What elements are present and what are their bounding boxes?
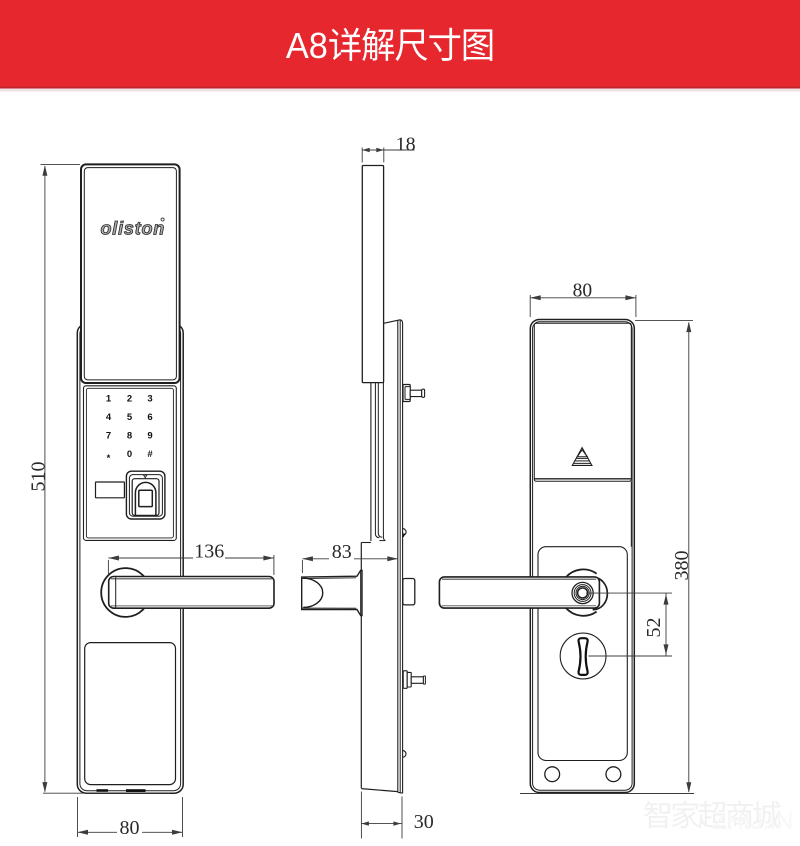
svg-text:2: 2 [127,394,132,405]
svg-text:30: 30 [414,811,434,833]
svg-text:80: 80 [573,280,593,301]
svg-text:9: 9 [147,431,152,442]
svg-text:°: ° [160,215,165,230]
svg-text:A8: A8 [286,26,328,66]
svg-text:83: 83 [332,541,352,563]
svg-text:18: 18 [396,134,416,156]
svg-text:136: 136 [194,541,224,563]
svg-text:#: # [147,449,153,460]
svg-text:oliston: oliston [101,219,166,239]
svg-text:6: 6 [147,412,152,423]
svg-text:4: 4 [106,412,112,423]
svg-text:3: 3 [147,394,152,405]
svg-text:8: 8 [127,431,132,442]
svg-text:80: 80 [120,817,140,839]
svg-text:380: 380 [671,551,693,581]
svg-text:*: * [107,453,111,464]
svg-text:510: 510 [27,462,49,492]
svg-text:5: 5 [127,412,133,423]
svg-text:52: 52 [643,618,665,638]
svg-text:ZHIJ.IN: ZHIJ.IN [712,808,793,835]
svg-text:1: 1 [106,394,112,405]
svg-text:0: 0 [127,449,132,460]
svg-text:7: 7 [106,431,111,442]
